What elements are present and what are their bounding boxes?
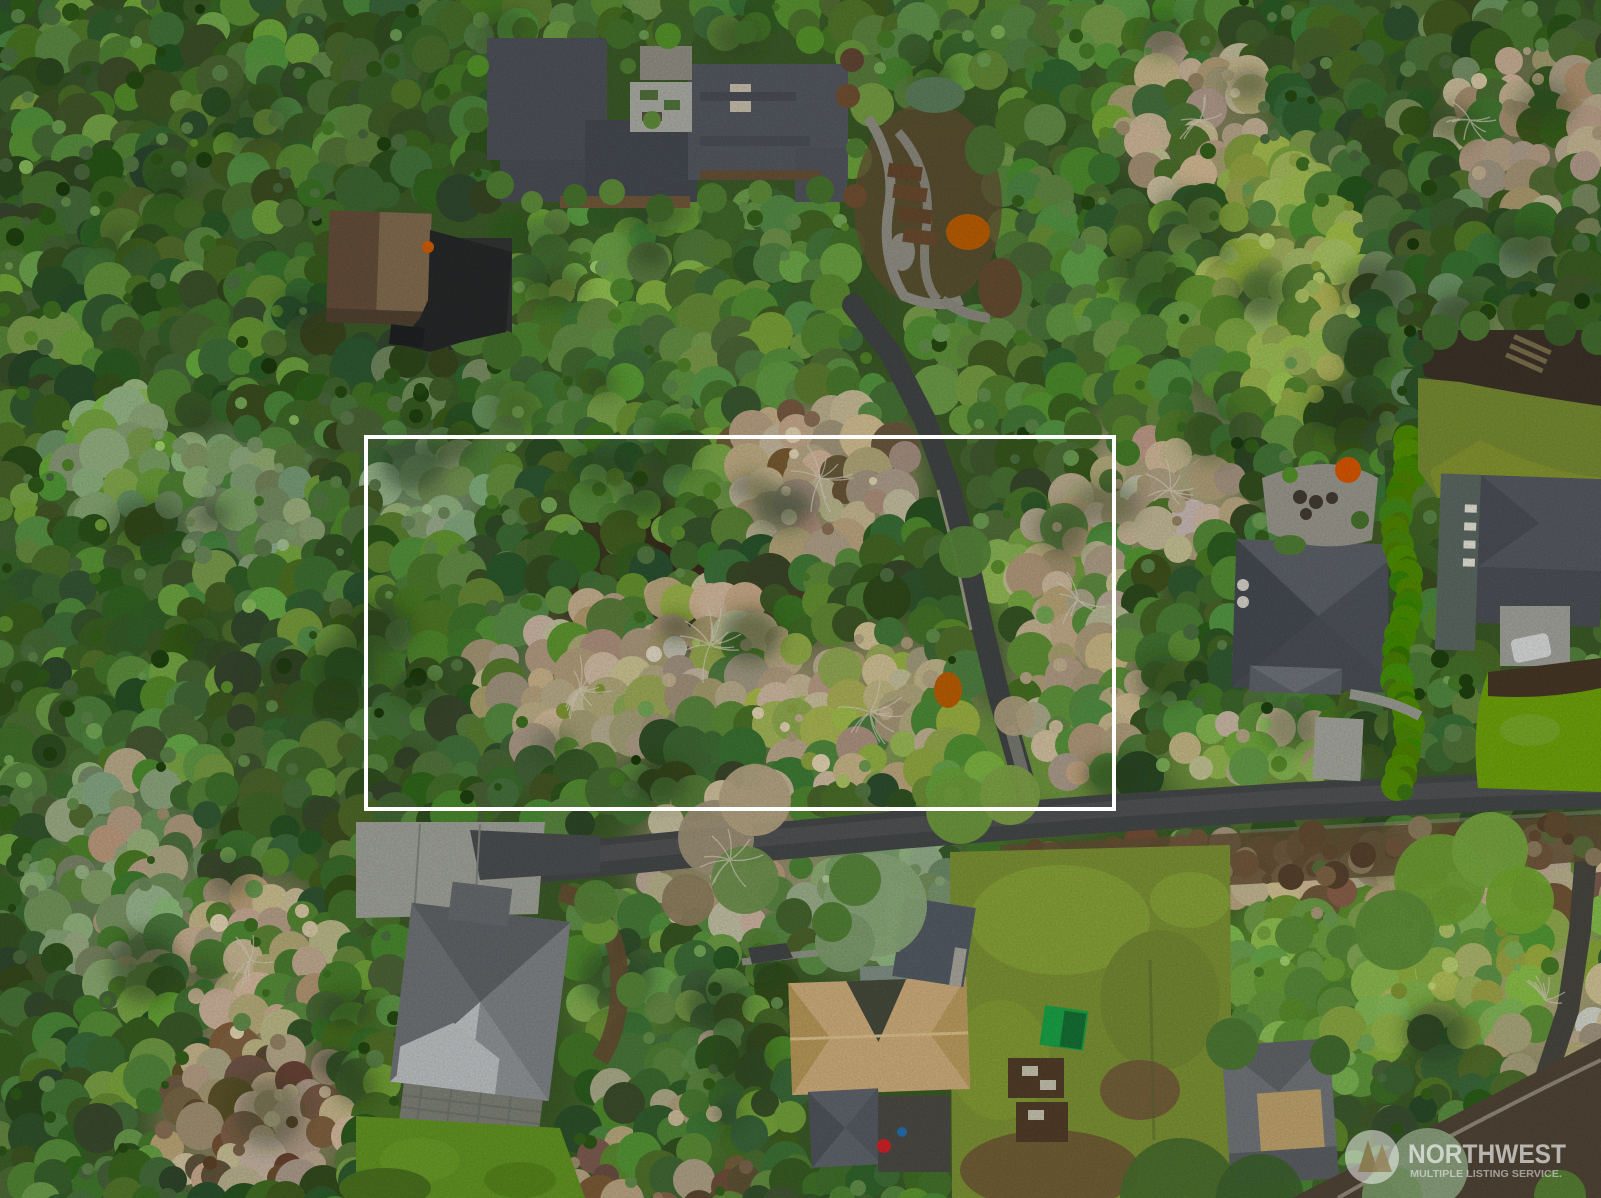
svg-text:NORTHWEST: NORTHWEST: [1408, 1139, 1566, 1169]
svg-text:MULTIPLE LISTING SERVICE.: MULTIPLE LISTING SERVICE.: [1410, 1168, 1562, 1180]
